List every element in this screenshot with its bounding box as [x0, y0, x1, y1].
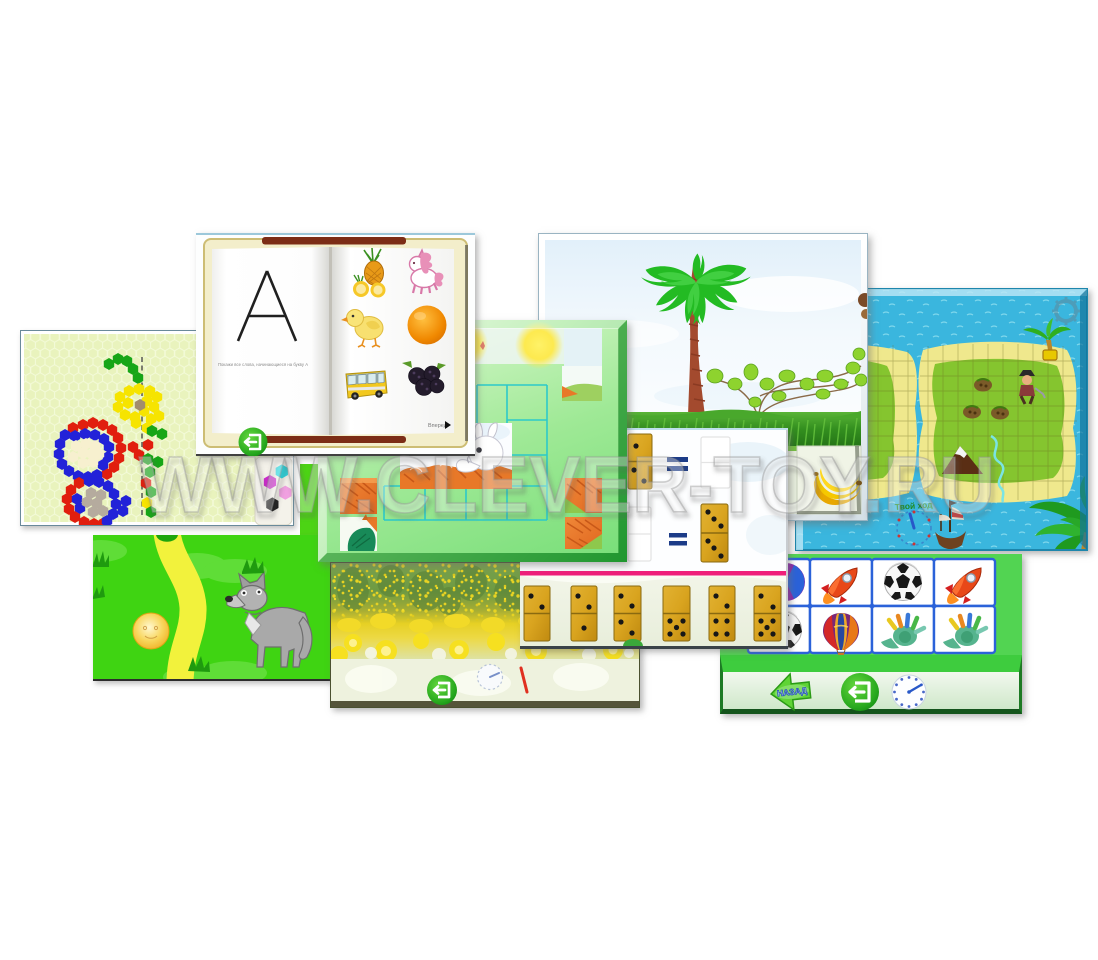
- svg-text:WWW.CLEVER-TOY.RU: WWW.CLEVER-TOY.RU: [139, 440, 995, 529]
